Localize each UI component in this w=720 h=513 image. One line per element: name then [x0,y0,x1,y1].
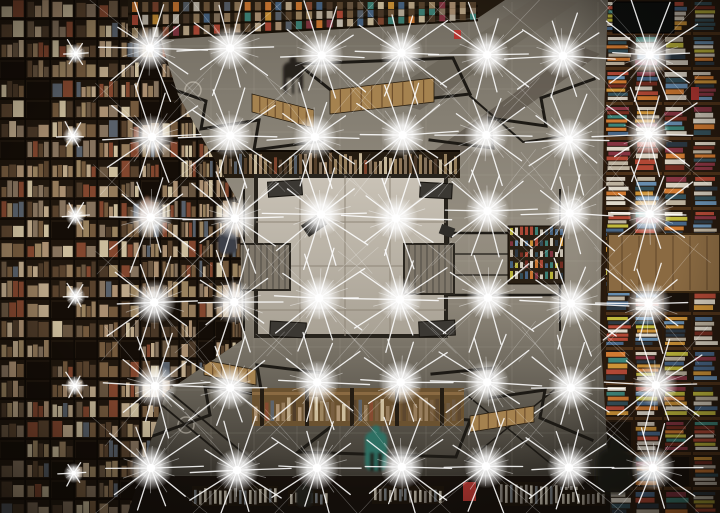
bookstore-mirror-ceiling-photo [0,0,720,513]
bookstore-atrium-photo [0,0,720,513]
